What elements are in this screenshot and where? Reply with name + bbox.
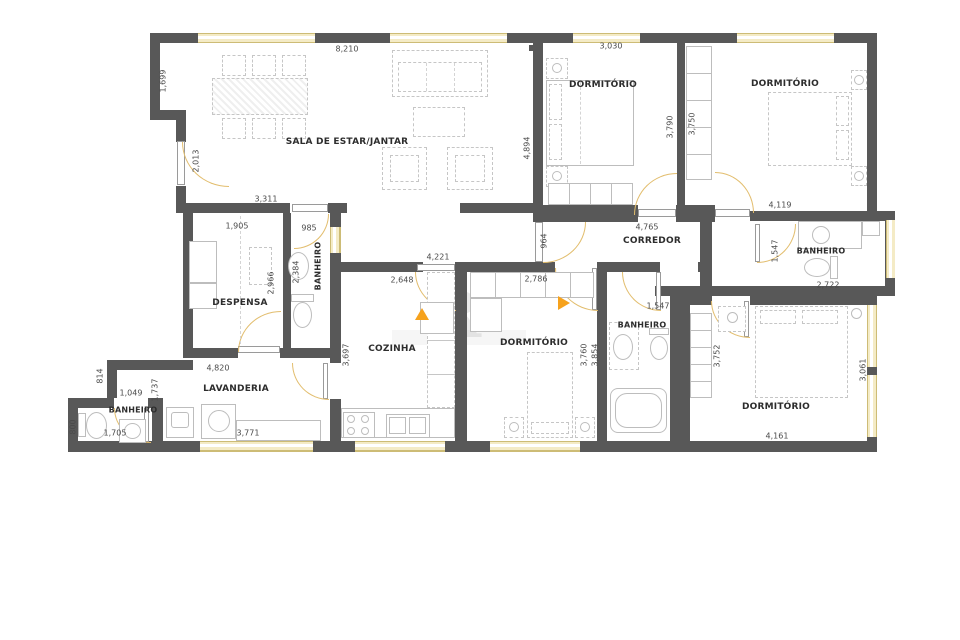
sink-basin <box>389 417 406 434</box>
pillow <box>531 422 569 434</box>
wall <box>107 360 193 370</box>
dimension: 2,384 <box>292 261 301 284</box>
room-label-lavanderia: LAVANDERIA <box>203 384 269 394</box>
room-label-dormitorio-4: DORMITÓRIO <box>742 402 810 412</box>
washer-drum <box>208 410 230 432</box>
room-label-dormitorio-2: DORMITÓRIO <box>751 79 819 89</box>
dimension: 2,966 <box>267 272 276 295</box>
entry-arrow-icon <box>415 308 429 320</box>
dining-chair <box>282 118 306 139</box>
dimension: 3,030 <box>600 42 623 51</box>
lamp <box>854 75 864 85</box>
closet-divider <box>690 347 712 348</box>
dimension: 8,210 <box>336 45 359 54</box>
closet-block <box>470 298 502 332</box>
dimension: 3,790 <box>666 116 675 139</box>
dining-chair <box>252 55 276 76</box>
dining-table <box>212 78 308 115</box>
window <box>867 305 877 367</box>
wall <box>152 398 163 441</box>
closet-divider <box>690 330 712 331</box>
lamp <box>580 422 590 432</box>
dimension: 3,311 <box>255 195 278 204</box>
room-label-banheiro-3: BANHEIRO <box>618 321 667 330</box>
closet-divider <box>686 73 712 74</box>
dimension: 1,049 <box>120 389 143 398</box>
dimension: 4,221 <box>427 253 450 262</box>
wall <box>68 441 877 452</box>
window <box>200 441 313 452</box>
lamp <box>509 422 519 432</box>
sink <box>812 226 830 244</box>
wall <box>867 367 877 375</box>
toilet-tank <box>291 294 314 302</box>
room-label-dormitorio-1: DORMITÓRIO <box>569 80 637 90</box>
dimension: 3,752 <box>713 345 722 368</box>
toilet-tank <box>78 413 86 437</box>
dimension: 4,161 <box>766 432 789 441</box>
wall <box>677 43 685 208</box>
sofa-cushion-line <box>398 62 482 92</box>
dimension: 1,699 <box>159 70 168 93</box>
wall <box>750 295 877 305</box>
lamp <box>854 171 864 181</box>
door-arc <box>182 142 229 187</box>
wall <box>698 262 712 272</box>
wall <box>107 370 117 398</box>
vanity-counter <box>798 221 862 249</box>
closet-divider <box>495 272 496 298</box>
toilet-bowl <box>293 302 312 328</box>
room-label-cozinha: COZINHA <box>368 344 416 354</box>
door-arc <box>634 173 677 215</box>
wall <box>543 205 638 222</box>
dimension: 3,760 <box>580 344 589 367</box>
room-label-corredor: CORREDOR <box>623 236 681 246</box>
door-arc <box>238 311 281 352</box>
closet-divider <box>611 183 612 205</box>
closet-divider <box>686 154 712 155</box>
closet-divider <box>570 272 571 298</box>
pillow <box>802 310 838 324</box>
sink <box>613 334 633 360</box>
closet <box>690 313 712 398</box>
wall <box>176 110 186 142</box>
cabinet-divider <box>427 340 455 341</box>
wall <box>467 262 555 272</box>
sink <box>124 423 141 439</box>
floor-plan: R <box>0 0 960 640</box>
dimension: 1,905 <box>226 222 249 231</box>
bathtub-inner <box>615 393 662 428</box>
coffee-table <box>413 107 465 137</box>
window <box>867 375 877 437</box>
closet-divider <box>569 183 570 205</box>
dining-chair <box>222 118 246 139</box>
pillow <box>836 96 849 126</box>
room-label-despensa: DESPENSA <box>212 298 267 308</box>
wall <box>183 348 238 358</box>
wall <box>68 398 114 408</box>
closet-divider <box>690 364 712 365</box>
entry-arrow-icon <box>558 296 570 310</box>
lamp <box>552 63 562 73</box>
pillow <box>760 310 796 324</box>
burner <box>361 415 369 423</box>
door-arc <box>292 363 329 400</box>
wall <box>455 262 467 441</box>
dimension: 3,061 <box>859 359 868 382</box>
wall <box>330 399 341 441</box>
window <box>198 33 315 43</box>
shelf <box>862 221 880 236</box>
dimension: 4,119 <box>769 201 792 210</box>
burner <box>361 427 369 435</box>
dimension: 4,765 <box>636 223 659 232</box>
window <box>330 227 341 253</box>
window <box>737 33 834 43</box>
room-label-dormitorio-3: DORMITÓRIO <box>500 338 568 348</box>
wall <box>280 348 341 358</box>
window <box>390 33 507 43</box>
wall <box>460 203 543 213</box>
toilet-tank <box>830 256 838 279</box>
burner <box>347 427 355 435</box>
pillow <box>549 84 562 120</box>
dimension: 3,771 <box>237 429 260 438</box>
dimension: 964 <box>540 233 549 248</box>
toilet-bowl <box>650 336 668 360</box>
bed-line <box>580 82 581 164</box>
door-arc <box>543 222 586 263</box>
wall <box>328 203 347 213</box>
dimension: 2,013 <box>192 150 201 173</box>
wall <box>533 33 543 222</box>
dining-chair <box>252 118 276 139</box>
wall-mark <box>529 45 535 51</box>
dining-chair <box>282 55 306 76</box>
closet-divider <box>590 183 591 205</box>
closet-divider <box>686 100 712 101</box>
lamp <box>552 171 562 181</box>
door-leaf <box>292 204 328 212</box>
dining-chair <box>222 55 246 76</box>
cabinet-divider <box>427 374 455 375</box>
room-label-banheiro-servico: BANHEIRO <box>109 406 158 415</box>
wall <box>867 33 877 221</box>
window <box>355 441 445 452</box>
door-arc <box>715 172 754 213</box>
dimension: 814 <box>96 368 105 383</box>
sink-basin <box>409 417 426 434</box>
closet-divider <box>520 272 521 298</box>
burner <box>347 415 355 423</box>
closet-divider <box>690 381 712 382</box>
sofa-divider <box>426 63 427 91</box>
pillow <box>549 124 562 160</box>
armchair-cushion <box>455 155 485 182</box>
dimension: 1,547 <box>647 302 670 311</box>
room-label-sala: SALA DE ESTAR/JANTAR <box>286 137 408 147</box>
dimension: 3,697 <box>342 344 351 367</box>
dimension: 4,894 <box>523 137 532 160</box>
pillow <box>836 130 849 160</box>
dimension: 3,854 <box>591 344 600 367</box>
dimension: 1,547 <box>771 240 780 263</box>
dimension: 2,786 <box>525 275 548 284</box>
door-leaf <box>417 264 455 271</box>
dimension: 985 <box>301 224 316 233</box>
wall <box>176 203 290 213</box>
wall <box>607 262 660 272</box>
dimension: 4,820 <box>207 364 230 373</box>
dimension: 800 <box>69 419 78 434</box>
dimension: 1,705 <box>104 429 127 438</box>
window <box>886 220 895 278</box>
toilet-bowl <box>804 258 830 277</box>
wall <box>337 262 423 272</box>
room-label-banheiro-social: BANHEIRO <box>314 242 323 291</box>
dimension: 1,737 <box>151 379 160 402</box>
room-label-banheiro-suite: BANHEIRO <box>797 247 846 256</box>
dimension: 2,648 <box>391 276 414 285</box>
sofa-divider <box>454 63 455 91</box>
laundry-tank-basin <box>171 412 189 428</box>
dimension: 2,722 <box>817 281 840 290</box>
dimension: 3,750 <box>688 113 697 136</box>
lamp <box>851 308 862 319</box>
lamp <box>727 312 738 323</box>
window <box>490 441 580 452</box>
armchair-cushion <box>390 155 419 182</box>
wall <box>283 213 291 348</box>
cabinet <box>189 241 217 283</box>
wall <box>670 296 690 441</box>
projection-line <box>240 216 241 344</box>
